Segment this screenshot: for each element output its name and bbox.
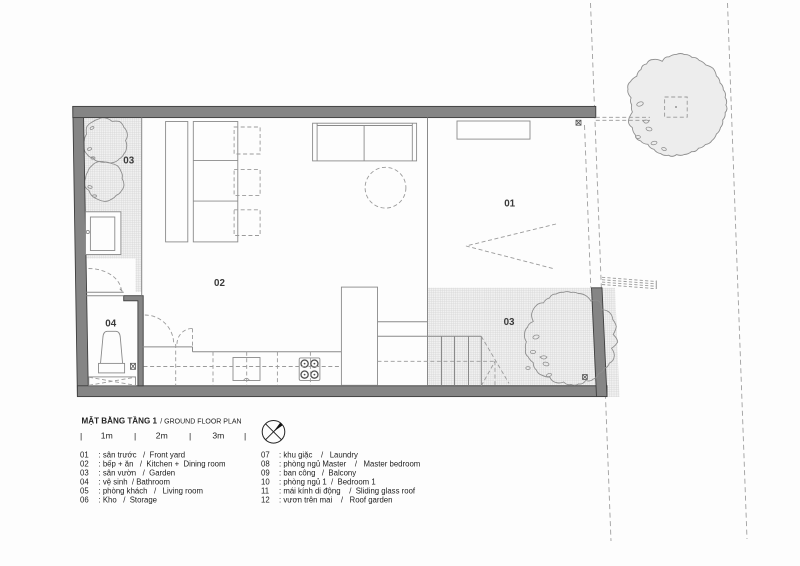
svg-text:: vệ sinh / Bathroom: : vệ sinh / Bathroom (99, 477, 171, 486)
svg-text:03: 03 (80, 468, 89, 477)
svg-text:|: | (80, 431, 82, 441)
svg-text:01: 01 (80, 450, 89, 459)
svg-text:: bếp + ăn / Kitchen + Din: : bếp + ăn / Kitchen + Dining room (99, 459, 226, 468)
svg-text:09: 09 (261, 468, 270, 477)
svg-text:11: 11 (261, 486, 269, 495)
svg-text:: mái kính di động / Slidi: : mái kính di động / Sliding glass roof (279, 486, 416, 495)
svg-text:3m: 3m (212, 431, 224, 441)
svg-text:|: | (134, 431, 136, 441)
svg-text:03: 03 (504, 317, 515, 328)
svg-text:07: 07 (261, 450, 270, 459)
svg-text:: sân vườn / Garden: : sân vườn / Garden (99, 468, 176, 477)
svg-text:: ban công / Balcony: : ban công / Balcony (279, 468, 356, 477)
svg-text:01: 01 (504, 198, 515, 209)
svg-text:2m: 2m (156, 431, 168, 441)
svg-text:: vươn trên mai / Roof ga: : vươn trên mai / Roof garden (279, 495, 392, 504)
svg-text:06: 06 (80, 495, 89, 504)
svg-text:03: 03 (123, 155, 134, 166)
svg-text:: khu giặc / Laundry: : khu giặc / Laundry (279, 450, 358, 459)
svg-text:05: 05 (80, 486, 89, 495)
svg-text:1m: 1m (101, 431, 113, 441)
svg-text:02: 02 (80, 459, 89, 468)
svg-text:: Kho / Storage: : Kho / Storage (99, 495, 158, 504)
svg-text:04: 04 (105, 319, 116, 330)
svg-text:: phòng khách / Living roo: : phòng khách / Living room (99, 486, 203, 495)
svg-text:04: 04 (80, 477, 89, 486)
svg-text:: phòng ngủ Master / Mast: : phòng ngủ Master / Master bedroom (279, 459, 420, 468)
svg-text:: phòng ngủ 1 / Bedroom 1: : phòng ngủ 1 / Bedroom 1 (279, 477, 376, 486)
svg-text:08: 08 (261, 459, 270, 468)
svg-text:|: | (244, 431, 246, 441)
svg-text:02: 02 (214, 278, 225, 289)
svg-text:|: | (189, 431, 191, 441)
svg-text:12: 12 (261, 495, 270, 504)
svg-text:: sân trước / Front yard: : sân trước / Front yard (99, 450, 186, 459)
svg-text:10: 10 (261, 477, 270, 486)
